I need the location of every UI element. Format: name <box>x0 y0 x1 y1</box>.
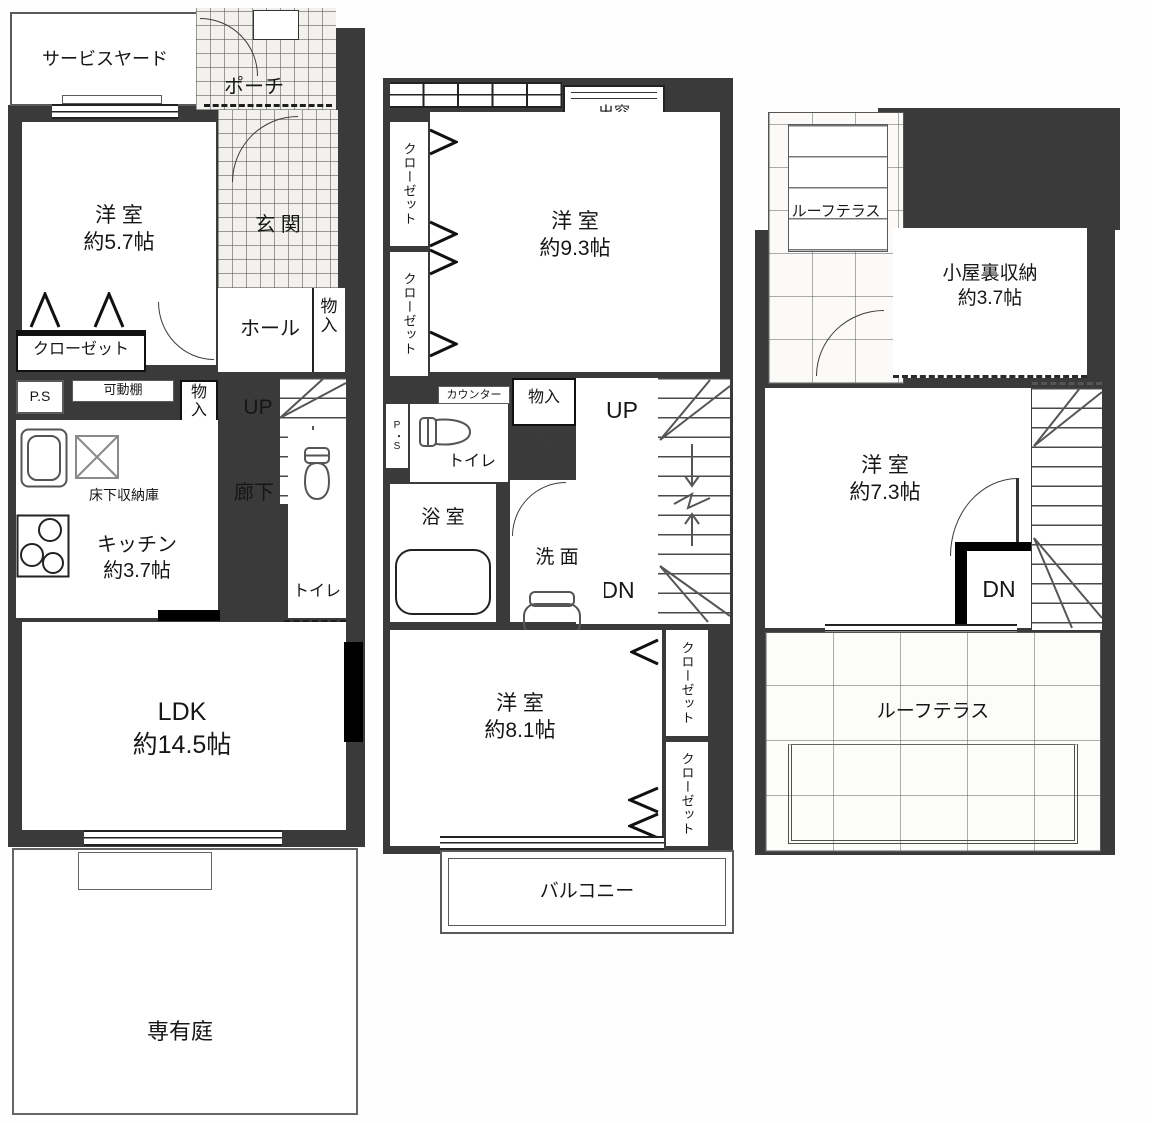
kitchen-sink-icon <box>20 428 68 488</box>
f1-movable-shelf-label: 可動棚 <box>72 382 174 399</box>
f2-room-9-3-label: 洋 室 約9.3帖 <box>505 208 645 263</box>
f1-genkan-label: 玄 関 <box>228 212 328 238</box>
f2-closet-left-2: クローゼット <box>390 252 428 376</box>
f3-dn-landing: DN <box>955 542 1031 628</box>
f1-step-band <box>158 610 220 621</box>
f1-ldk-label: LDK 約14.5帖 <box>82 696 282 761</box>
f1-storage-stair-label: 物入 <box>189 384 209 419</box>
f3-stairs-dashed <box>1032 382 1102 385</box>
hanger-icon <box>28 292 62 328</box>
f2-stairs-marks <box>658 378 730 624</box>
hanger-icon <box>428 220 458 248</box>
f3-stairs-marks <box>1032 388 1102 630</box>
f2-window-row-dividers <box>390 82 562 108</box>
f2-closet-left-1: クローゼット <box>390 122 428 246</box>
hanger-icon <box>428 128 458 156</box>
f1-corridor-label: 廊下 <box>218 480 290 506</box>
f3-dn-label: DN <box>982 575 1015 605</box>
f1-porch-recess <box>253 10 299 40</box>
f1-service-yard-label: サービスヤード <box>10 48 200 71</box>
f1-up-label: UP <box>236 394 280 421</box>
f2-closet-right-2: クローゼット <box>666 742 708 846</box>
f1-garden-label: 専有庭 <box>80 1018 280 1047</box>
f2-closet-right-1-label: クローゼット <box>678 641 697 725</box>
f1-closet-label: クローゼット <box>16 340 146 361</box>
hanger-icon <box>630 638 660 666</box>
f2-balcony-inner: バルコニー <box>448 858 726 926</box>
f2-bay-window-line <box>571 92 657 99</box>
f2-closet-left-2-label: クローゼット <box>400 272 419 356</box>
f2-pipe-space: P・S <box>386 404 408 468</box>
f2-closet-right-2-label: クローゼット <box>678 752 697 836</box>
f2-toilet-label: トイレ <box>438 452 506 473</box>
f3-roof-terrace-bottom-label: ルーフテラス <box>833 700 1033 725</box>
f2-closet-left-1-label: クローゼット <box>400 142 419 226</box>
f2-washroom-label: 洗 面 <box>510 546 604 571</box>
f2-balcony-label: バルコニー <box>540 880 635 905</box>
f1-storage-right-label: 物入 <box>319 298 339 335</box>
f2-balcony-window <box>440 836 664 850</box>
f1-room-5-7-label: 洋 室 約5.7帖 <box>22 202 216 257</box>
f1-toilet-label: トイレ <box>288 582 346 603</box>
floorplan: サービスヤード ポーチ 玄 関 洋 室 約5.7帖 クローゼット ホール 物入 … <box>0 0 1152 1123</box>
f3-roof-terrace-top-label: ルーフテラス <box>770 202 902 222</box>
f3-attic-storage-label: 小屋裏収納 約3.7帖 <box>893 262 1087 311</box>
f1-porch-wall <box>336 28 365 108</box>
f2-room-8-1-label: 洋 室 約8.1帖 <box>420 690 620 745</box>
f2-storage-label: 物入 <box>512 388 576 409</box>
f3-terrace-rack <box>788 124 888 252</box>
hanger-icon <box>428 330 458 358</box>
f1-yard-shelf <box>62 95 162 104</box>
f1-kitchen-label: キッチン 約3.7帖 <box>70 532 204 584</box>
toilet-icon <box>418 412 476 452</box>
hanger-icon <box>92 292 126 328</box>
f2-bathroom-label: 浴 室 <box>390 506 496 531</box>
f1-room-window <box>52 104 178 119</box>
bathtub-icon <box>394 548 492 616</box>
f1-pipe-space-label: P.S <box>16 387 64 405</box>
hanger-icon <box>628 786 660 842</box>
f1-garden-terrace-step <box>78 852 212 890</box>
f3-terrace-rail <box>788 744 1078 844</box>
f3-roof-block <box>878 108 1120 230</box>
f1-porch-step-line <box>204 104 332 107</box>
f1-ldk-window <box>84 830 282 846</box>
stove-icon <box>16 514 70 578</box>
f1-porch-label: ポーチ <box>196 74 312 100</box>
hanger-icon <box>428 248 458 276</box>
toilet-icon <box>299 446 335 502</box>
f1-underfloor-label: 床下収納庫 <box>66 486 182 504</box>
f3-room-7-3-label: 洋 室 約7.3帖 <box>800 452 970 507</box>
f2-counter-label: カウンター <box>438 388 510 402</box>
f2-pipe-space-label: P・S <box>390 420 405 452</box>
f2-up-label: UP <box>592 396 652 426</box>
f1-wall-accent <box>344 642 363 742</box>
f1-hall-label: ホール <box>218 316 322 342</box>
underfloor-storage-icon <box>74 434 120 480</box>
f2-closet-right-1: クローゼット <box>666 630 708 736</box>
